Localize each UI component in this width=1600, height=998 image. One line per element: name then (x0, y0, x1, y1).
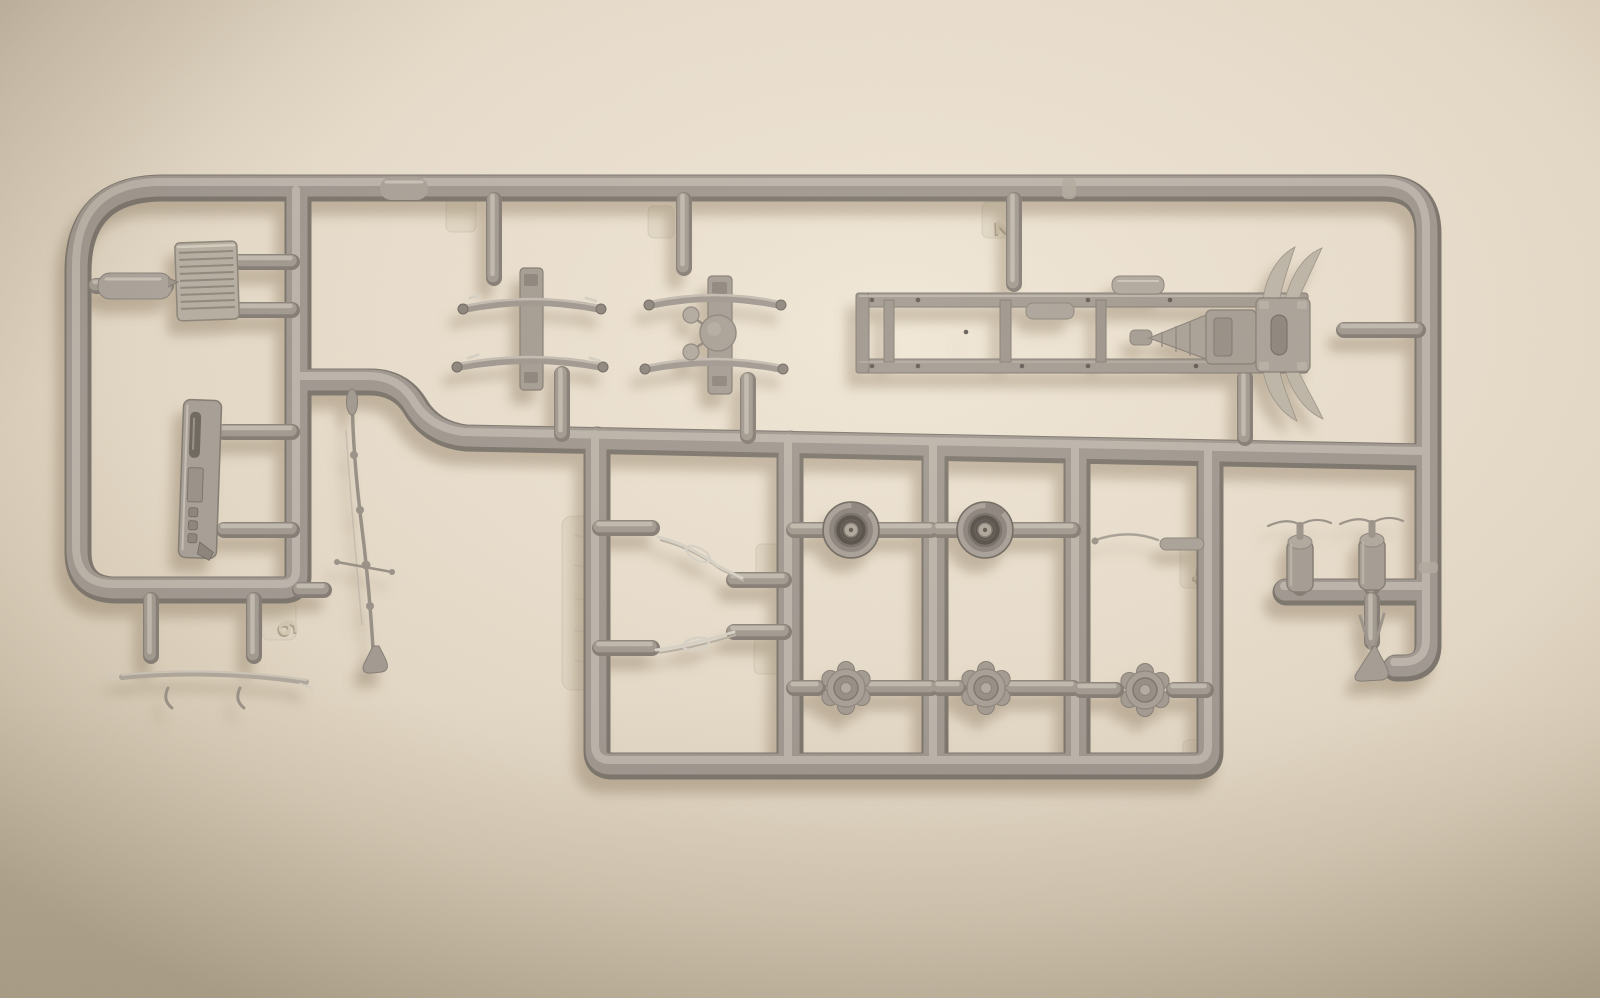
film-grain (0, 0, 1600, 998)
photo-stage: Photograph of a grey injection-moulded p… (0, 0, 1600, 998)
sprue-photo-svg: Photograph of a grey injection-moulded p… (0, 0, 1600, 998)
